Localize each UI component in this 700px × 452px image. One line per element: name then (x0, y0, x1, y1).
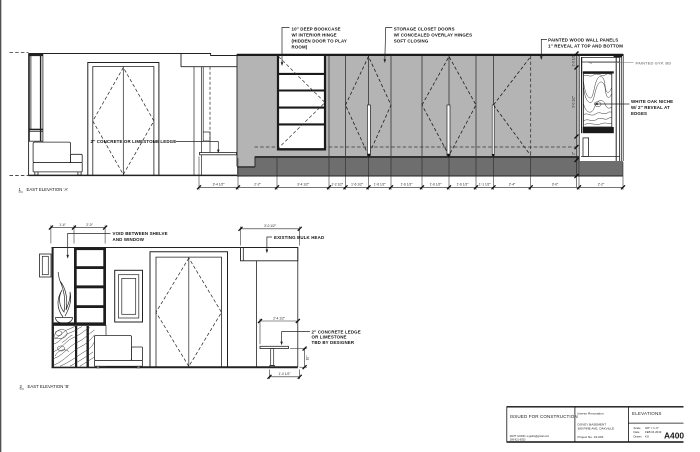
svg-text:3’-0 1/2″: 3’-0 1/2″ (264, 224, 277, 228)
svg-text:1’-2 1/2″: 1’-2 1/2″ (331, 183, 344, 187)
svg-text:380 PINE AVE, OAKVILLE: 380 PINE AVE, OAKVILLE (578, 426, 615, 430)
svg-text:289-921-6553: 289-921-6553 (510, 439, 526, 442)
svg-text:EDGES: EDGES (631, 111, 647, 116)
svg-text:1’-6 1/2″: 1’-6 1/2″ (457, 183, 470, 187)
svg-text:10″ DEEP BOOKCASE: 10″ DEEP BOOKCASE (292, 26, 341, 31)
svg-text:1’-4″: 1’-4″ (59, 223, 66, 227)
svg-text:Project No. 19-003: Project No. 19-003 (578, 435, 604, 439)
svg-text:TBD BY DESIGNER: TBD BY DESIGNER (312, 340, 355, 345)
svg-text:3’-4 1/2″: 3’-4 1/2″ (297, 183, 310, 187)
svg-text:ROOM): ROOM) (292, 44, 308, 49)
svg-text:3’-4 1/2″: 3’-4 1/2″ (213, 183, 226, 187)
svg-text:3’-0 1/2″: 3’-0 1/2″ (571, 95, 575, 108)
svg-text:KG: KG (645, 434, 649, 438)
svg-text:WHITE OAK NICHE: WHITE OAK NICHE (631, 99, 673, 104)
svg-text:Drawn: Drawn (634, 434, 643, 438)
svg-text:AND WINDOW: AND WINDOW (113, 237, 145, 242)
svg-text:A400: A400 (664, 431, 684, 441)
svg-text:PAINTED WOOD WALL PANELS: PAINTED WOOD WALL PANELS (548, 38, 618, 43)
svg-text:2″ CONCRETE OR LIMESTONE LEDGE: 2″ CONCRETE OR LIMESTONE LEDGE (91, 139, 177, 144)
svg-text:1’-6 1/2″: 1’-6 1/2″ (401, 183, 414, 187)
svg-text:(HIDDEN DOOR TO PLAY: (HIDDEN DOOR TO PLAY (292, 38, 347, 43)
svg-text:2’-4 1/2″: 2’-4 1/2″ (273, 316, 286, 320)
svg-text:1’-1 1/2″: 1’-1 1/2″ (479, 183, 492, 187)
svg-text:2’-2″: 2’-2″ (598, 183, 605, 187)
svg-text:STORAGE CLOSET DOORS: STORAGE CLOSET DOORS (394, 26, 455, 31)
svg-text:W/ 2″ REVEAL AT: W/ 2″ REVEAL AT (631, 105, 670, 110)
svg-text:1’-6 1/2″: 1’-6 1/2″ (374, 183, 387, 187)
svg-text:W/ INTERIOR HINGE: W/ INTERIOR HINGE (292, 32, 337, 37)
svg-text:2’-4″: 2’-4″ (509, 183, 516, 187)
svg-text:2’-0 1/2″: 2’-0 1/2″ (571, 54, 575, 67)
svg-text:EXISTING BULK HEAD: EXISTING BULK HEAD (274, 235, 324, 240)
svg-text:EAST ELEVATION ‘B’: EAST ELEVATION ‘B’ (28, 384, 70, 389)
svg-text:W/ CONCEALED OVERLAY HINGES: W/ CONCEALED OVERLAY HINGES (394, 32, 472, 37)
svg-text:1’-6 1/2″: 1’-6 1/2″ (351, 183, 364, 187)
svg-text:PAINTED GYP. BD: PAINTED GYP. BD (636, 60, 672, 65)
svg-text:1’-0 1/2″: 1’-0 1/2″ (279, 372, 292, 376)
svg-text:VOID BETWEEN SHELVE: VOID BETWEEN SHELVE (113, 231, 168, 236)
svg-text:2’-0″: 2’-0″ (86, 223, 93, 227)
svg-text:SOFT CLOSING: SOFT CLOSING (394, 38, 429, 43)
svg-text:3’-0″: 3’-0″ (552, 183, 559, 187)
svg-text:EAST ELEVATION ‘A’: EAST ELEVATION ‘A’ (27, 187, 69, 192)
svg-text:ISSUED FOR CONSTRUCTION: ISSUED FOR CONSTRUCTION (510, 414, 578, 419)
svg-text:1’-6 1/2″: 1’-6 1/2″ (430, 183, 443, 187)
svg-text:1″ REVEAL AT TOP AND BOTTOM: 1″ REVEAL AT TOP AND BOTTOM (548, 44, 623, 49)
svg-text:Interior Renovation: Interior Renovation (578, 412, 604, 416)
svg-text:ELEVATIONS: ELEVATIONS (632, 411, 662, 416)
svg-text:2’-2″: 2’-2″ (254, 183, 261, 187)
